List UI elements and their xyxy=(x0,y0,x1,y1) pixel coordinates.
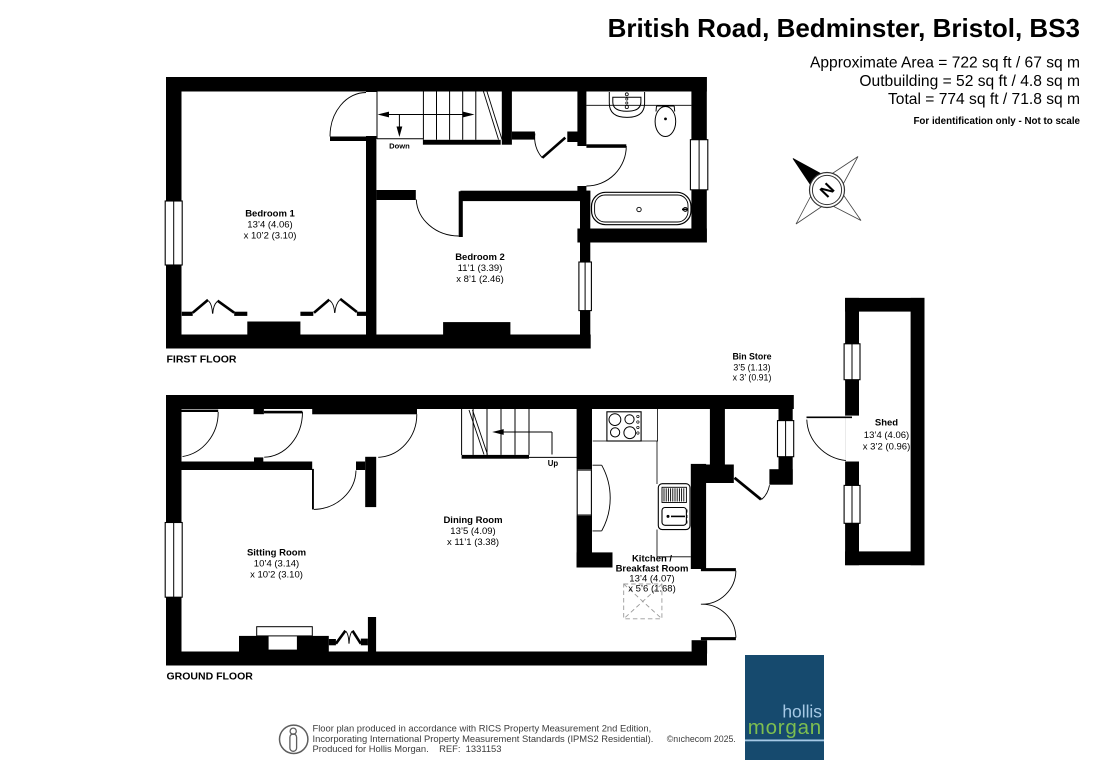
svg-text:Shed: Shed xyxy=(875,417,898,428)
svg-text:British Road, Bedminster, Bris: British Road, Bedminster, Bristol, BS3 xyxy=(608,13,1080,43)
svg-text:Total = 774 sq ft / 71.8 sq m: Total = 774 sq ft / 71.8 sq m xyxy=(888,91,1080,108)
svg-text:GROUND FLOOR: GROUND FLOOR xyxy=(167,670,254,682)
svg-text:x 5’6 (1.68): x 5’6 (1.68) xyxy=(628,583,676,594)
svg-text:Outbuilding = 52 sq ft / 4.8 s: Outbuilding = 52 sq ft / 4.8 sq m xyxy=(859,73,1080,90)
svg-text:x 8’1 (2.46): x 8’1 (2.46) xyxy=(456,274,504,285)
svg-text:13’4 (4.06): 13’4 (4.06) xyxy=(247,220,292,231)
svg-text:11’1 (3.39): 11’1 (3.39) xyxy=(458,263,503,274)
svg-text:x 11’1 (3.38): x 11’1 (3.38) xyxy=(447,537,499,548)
svg-text:Dining Room: Dining Room xyxy=(443,515,502,526)
svg-text:3’5 (1.13): 3’5 (1.13) xyxy=(733,363,770,373)
svg-text:Bin Store: Bin Store xyxy=(732,352,771,362)
svg-text:x 10’2 (3.10): x 10’2 (3.10) xyxy=(244,231,297,242)
svg-text:x 10’2 (3.10): x 10’2 (3.10) xyxy=(250,569,303,580)
svg-text:10’4 (3.14): 10’4 (3.14) xyxy=(254,558,299,569)
svg-text:Approximate Area = 722 sq ft /: Approximate Area = 722 sq ft / 67 sq m xyxy=(810,54,1080,71)
svg-text:x 3’ (0.91): x 3’ (0.91) xyxy=(733,373,772,383)
svg-text:13’4 (4.06): 13’4 (4.06) xyxy=(864,430,909,441)
svg-text:Sitting Room: Sitting Room xyxy=(247,547,306,558)
svg-text:Up: Up xyxy=(548,459,559,468)
svg-text:©nıchecom 2025.: ©nıchecom 2025. xyxy=(667,734,736,744)
svg-text:For identification only - Not: For identification only - Not to scale xyxy=(913,116,1080,127)
svg-text:FIRST FLOOR: FIRST FLOOR xyxy=(167,354,237,366)
svg-text:Bedroom 1: Bedroom 1 xyxy=(245,209,295,220)
svg-text:Produced for Hollis Morgan.: Produced for Hollis Morgan. REF: 1331153 xyxy=(313,743,502,754)
svg-text:13’5 (4.09): 13’5 (4.09) xyxy=(450,526,495,537)
svg-text:morgan: morgan xyxy=(748,716,822,739)
svg-text:Bedroom 2: Bedroom 2 xyxy=(455,252,505,263)
svg-text:x 3’2 (0.96): x 3’2 (0.96) xyxy=(863,441,911,452)
svg-text:Down: Down xyxy=(389,142,410,151)
